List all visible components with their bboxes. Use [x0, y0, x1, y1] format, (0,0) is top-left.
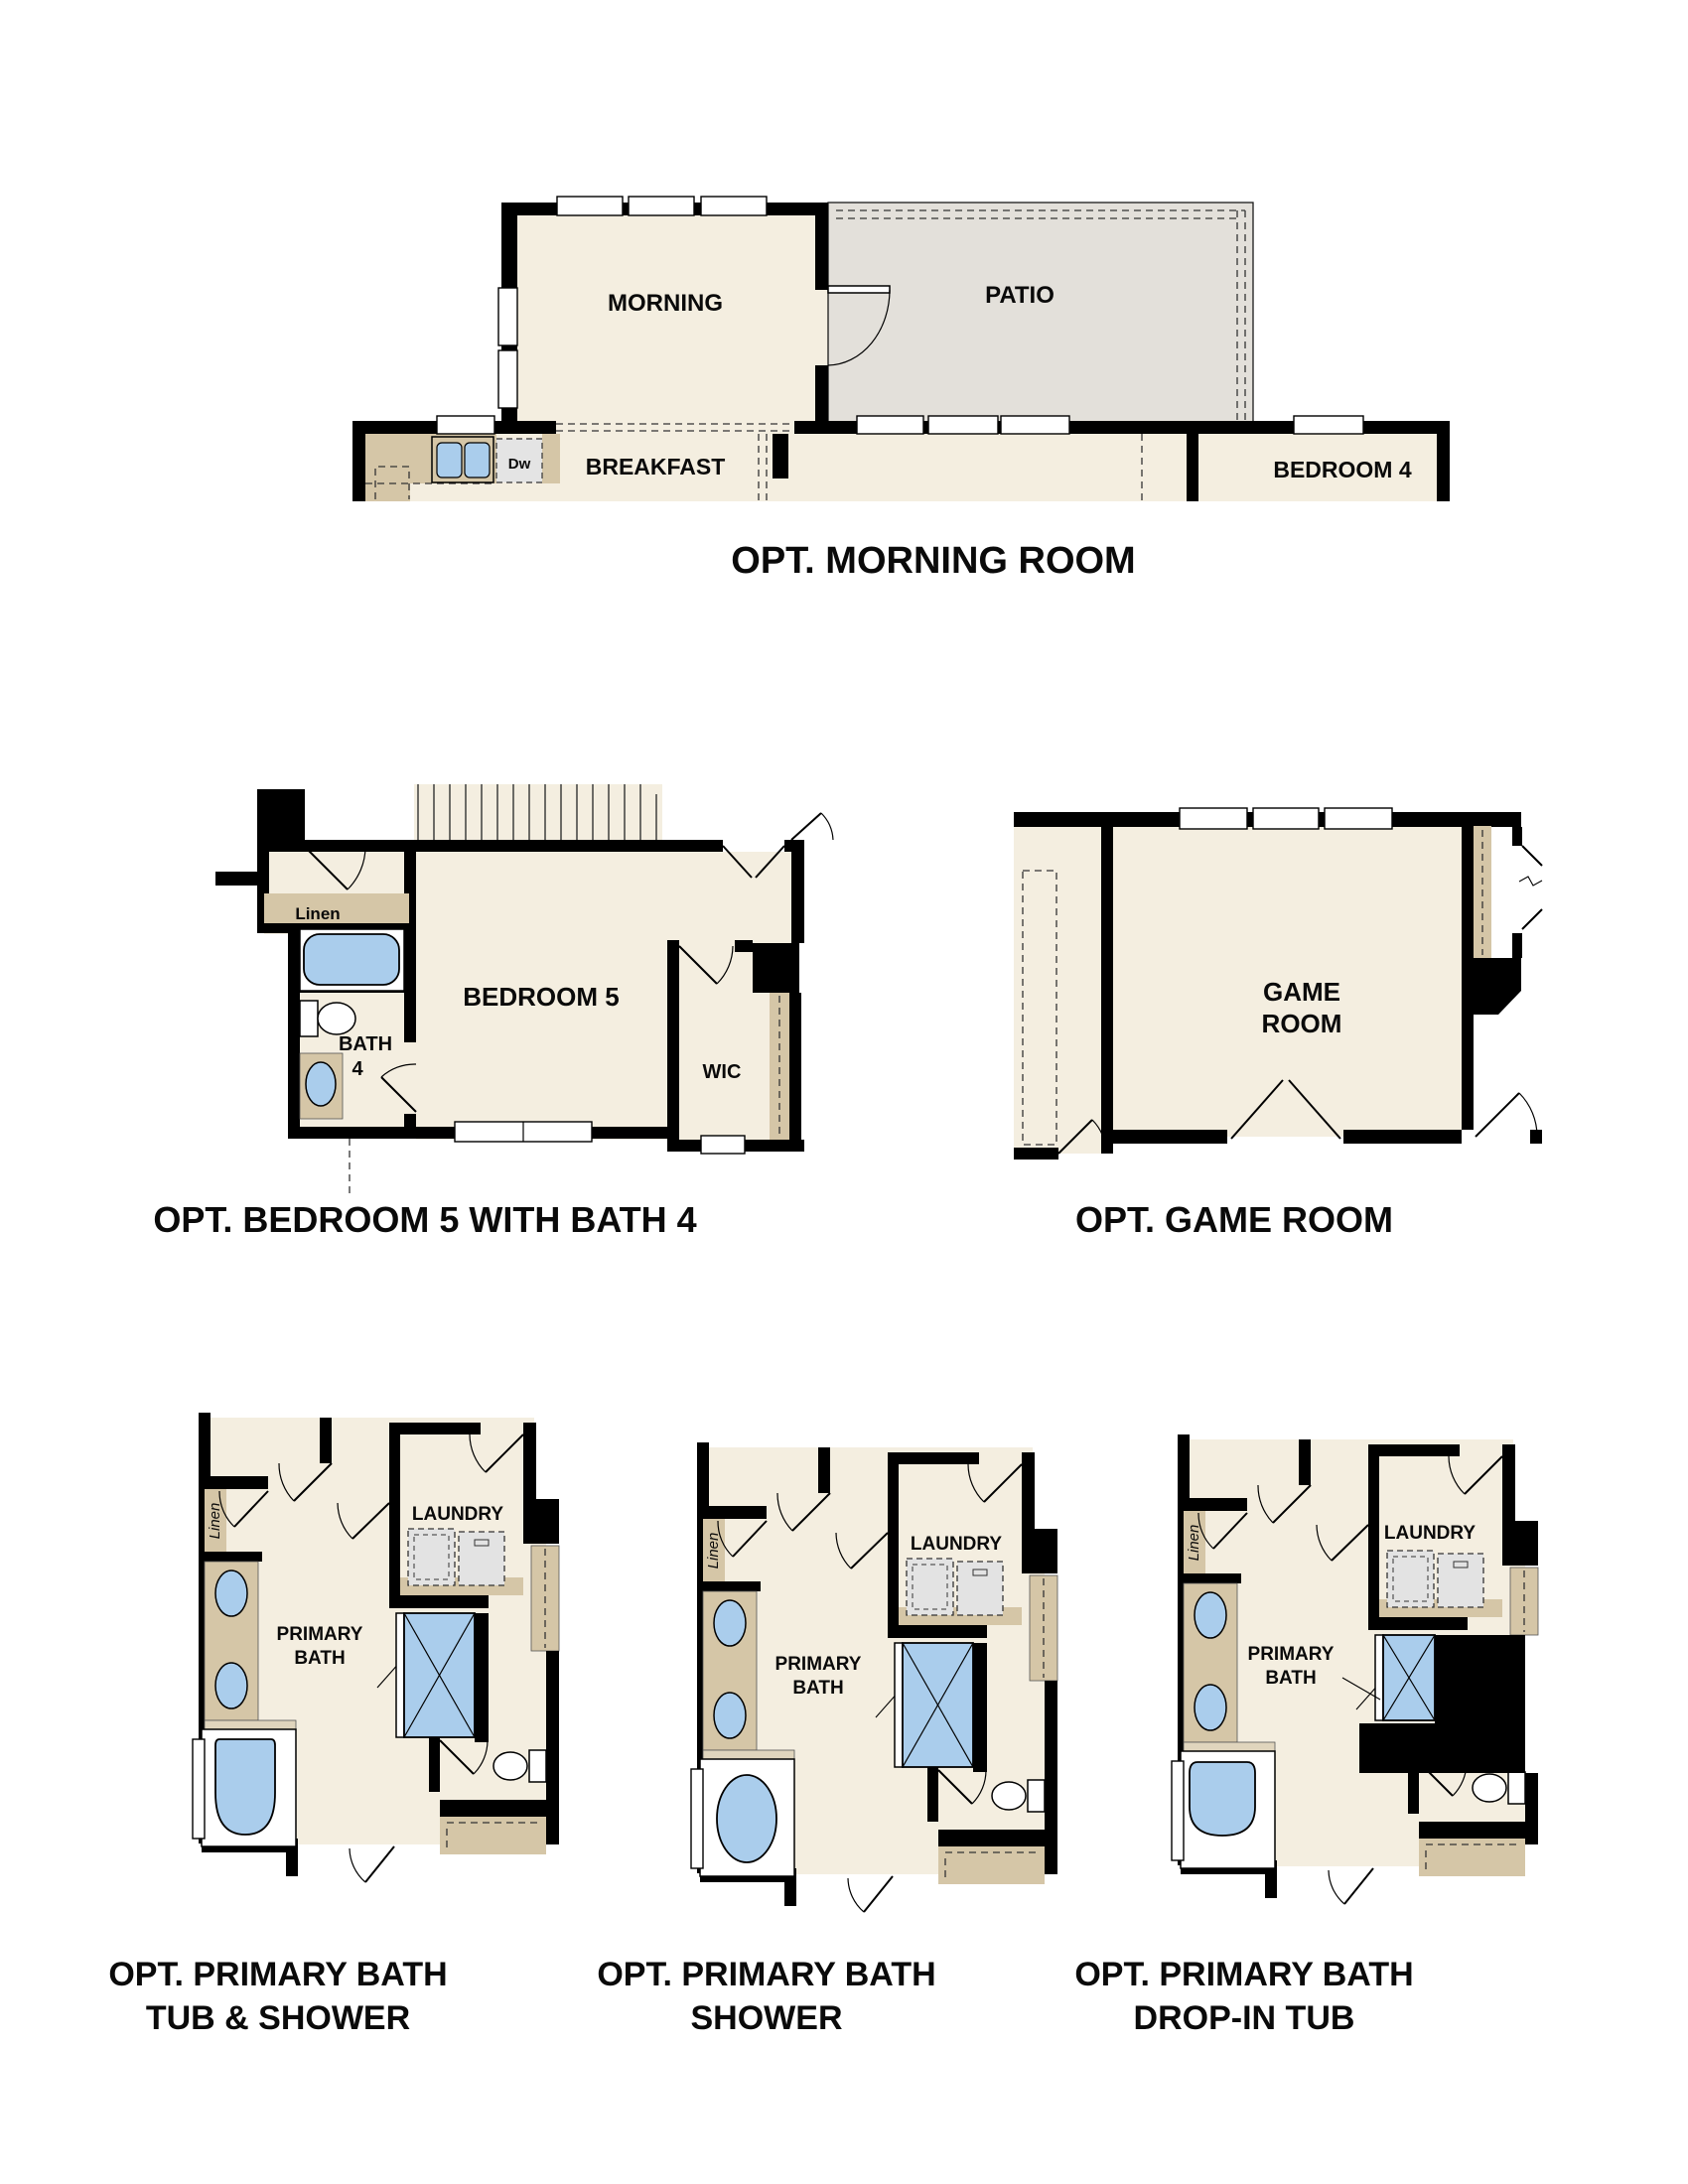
plan-title-tub-shower-line1: OPT. PRIMARY BATH	[108, 1956, 447, 1993]
laundry-label: LAUNDRY	[412, 1504, 504, 1525]
primary-bath-label-line2: BATH	[792, 1678, 843, 1699]
plan-title-dropin-line2: DROP-IN TUB	[1134, 1999, 1355, 2037]
window	[928, 416, 998, 434]
morning-room-label: MORNING	[608, 290, 723, 317]
garden-tub	[717, 1775, 776, 1862]
wall-break-mark	[1519, 877, 1542, 886]
primary-bath-label-line2: BATH	[294, 1648, 345, 1669]
linen-label: Linen	[705, 1533, 722, 1570]
sink	[306, 1062, 336, 1106]
window	[498, 288, 517, 345]
plan-primary-bath-dropin: Linen LAUNDRY PRIMARY BATH OPT. PRIMARY …	[1074, 1434, 1538, 2037]
door-leaf	[828, 286, 890, 293]
window	[701, 197, 767, 215]
window	[857, 416, 923, 434]
bathtub	[304, 934, 399, 985]
window	[1001, 416, 1069, 434]
bath4-number: 4	[352, 1058, 363, 1080]
floorplan-canvas: Dw MORNING PATIO BREAKFAST BEDROOM 4 OPT…	[0, 0, 1688, 2184]
plan-primary-bath-tub-shower: Linen LAUNDRY PRIMARY BATH OPT. PRIMARY …	[108, 1413, 559, 2037]
game-room-label-line2: ROOM	[1262, 1009, 1342, 1038]
bathtub	[215, 1739, 275, 1835]
dishwasher-label: Dw	[508, 456, 531, 473]
floorplan-options-page: Dw MORNING PATIO BREAKFAST BEDROOM 4 OPT…	[0, 0, 1688, 2184]
chase-black	[257, 789, 305, 847]
linen-label: Linen	[207, 1503, 223, 1540]
laundry-label: LAUNDRY	[911, 1534, 1003, 1555]
plan-title-bedroom5: OPT. BEDROOM 5 WITH BATH 4	[153, 1199, 696, 1240]
window	[629, 197, 694, 215]
breakfast-label: BREAKFAST	[586, 454, 726, 479]
plan-title-shower-line1: OPT. PRIMARY BATH	[597, 1956, 935, 1993]
patio-area	[828, 203, 1253, 427]
window	[1180, 808, 1247, 829]
primary-bath-label-line1: PRIMARY	[277, 1624, 363, 1645]
plan-title-shower-line2: SHOWER	[691, 1999, 843, 2037]
window	[437, 416, 494, 434]
plan-title-game-room: OPT. GAME ROOM	[1075, 1199, 1393, 1240]
linen-label: Linen	[295, 904, 340, 923]
drop-in-tub	[1190, 1762, 1255, 1836]
bedroom5-label: BEDROOM 5	[463, 982, 619, 1012]
toilet	[300, 1001, 355, 1036]
bedroom4-label: BEDROOM 4	[1273, 457, 1412, 482]
window	[557, 197, 623, 215]
window	[1253, 808, 1319, 829]
fireplace-black	[1462, 958, 1521, 1015]
plan-game-room: GAME ROOM OPT. GAME ROOM	[1014, 808, 1542, 1240]
primary-bath-label-line1: PRIMARY	[775, 1654, 862, 1675]
plan-primary-bath-shower: Linen LAUNDRY PRIMARY BATH OPT. PRIMARY …	[597, 1442, 1057, 2037]
plan-bedroom5-bath4: Linen BEDROOM 5 BATH 4 WIC	[153, 784, 833, 1240]
plan-title-dropin-line1: OPT. PRIMARY BATH	[1074, 1956, 1413, 1993]
primary-bath-label-line1: PRIMARY	[1248, 1644, 1335, 1665]
plan-morning-room: Dw MORNING PATIO BREAKFAST BEDROOM 4 OPT…	[352, 197, 1450, 582]
window	[1325, 808, 1392, 829]
linen-label: Linen	[1186, 1525, 1202, 1562]
primary-bath-label-line2: BATH	[1265, 1668, 1316, 1689]
window	[498, 350, 517, 408]
plan-title-tub-shower-line2: TUB & SHOWER	[146, 1999, 410, 2037]
game-room-label-line1: GAME	[1263, 977, 1340, 1007]
window	[701, 1136, 745, 1154]
patio-label: PATIO	[985, 282, 1055, 309]
wic-label: WIC	[703, 1061, 742, 1083]
bath4-label: BATH	[339, 1033, 392, 1055]
laundry-label: LAUNDRY	[1384, 1523, 1477, 1544]
plan-title-morning-room: OPT. MORNING ROOM	[731, 540, 1135, 582]
window	[1294, 416, 1363, 434]
